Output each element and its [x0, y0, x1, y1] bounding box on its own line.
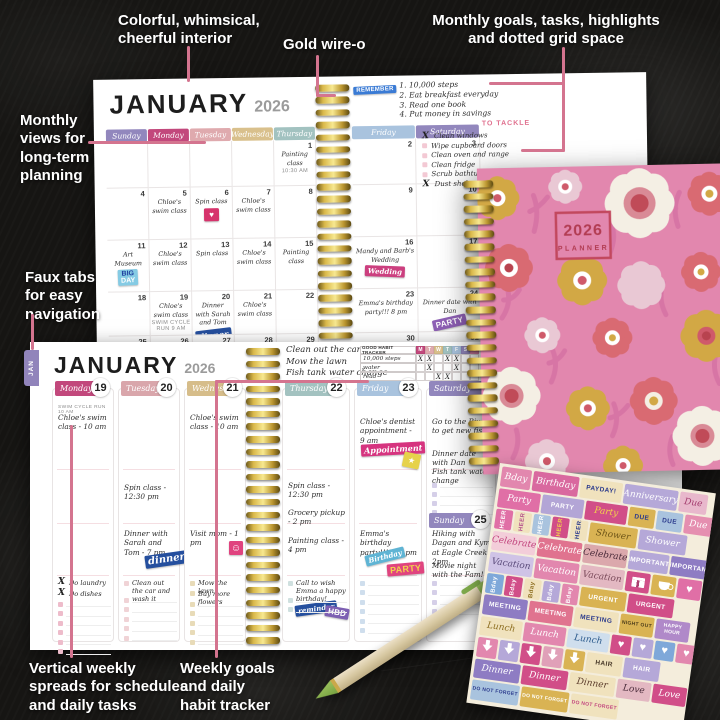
- gold-wire-o-binding: [315, 84, 353, 338]
- annotation-weekly-goals: Weekly goals and daily habit tracker: [180, 660, 275, 715]
- wire-loop: [246, 537, 280, 544]
- monthly-day-cell: [232, 140, 275, 187]
- sunday-banner: Sunday: [429, 513, 477, 528]
- monthly-day-cell: 23Emma's birthday party!!! 8 pm: [354, 288, 419, 333]
- monthly-weekday-header: Tuesday: [190, 128, 231, 142]
- todo-item: XDo laundry: [58, 579, 111, 587]
- smiley-sticker: ☺: [229, 541, 243, 555]
- wire-loop: [246, 373, 280, 380]
- habit-day-header: M: [416, 346, 425, 354]
- habit-mark-cell: [416, 363, 425, 372]
- habit-mark-cell: X: [443, 372, 452, 381]
- day-event-text: Painting class: [274, 151, 315, 169]
- day-event-text: Spin class: [191, 198, 232, 207]
- habit-tracker: GOOD HABIT TRACKERMTWTFSS10,000 stepsXXX…: [360, 346, 479, 381]
- day-event-text: Dinner with Sarah and Tom: [192, 302, 233, 328]
- schedule-rule: [287, 469, 345, 470]
- arrow-sticker-tile: [563, 649, 586, 671]
- important-sticker-tile: IMPORTANT: [669, 555, 711, 580]
- PARTY-sticker: PARTY: [387, 561, 425, 576]
- day-event-text: Emma's birthday party!!! 8 pm: [354, 299, 417, 317]
- cheers-sticker-tile: CHEERS: [494, 509, 514, 531]
- heart-sticker-tile: [676, 578, 702, 601]
- monthly-day-cell: [148, 142, 191, 189]
- empty-checkbox-row: [360, 589, 419, 596]
- to-tackle-item: Scrub bathtub: [422, 170, 482, 179]
- cheers-sticker-tile: CHEERS: [531, 514, 551, 536]
- wire-loop: [246, 612, 280, 619]
- habit-day-header: S: [470, 346, 479, 354]
- wire-loop: [246, 486, 280, 493]
- planner-cover: 2026 PLANNER: [477, 163, 720, 474]
- column-event-text: Spin class - 12:30 pm: [288, 481, 346, 500]
- empty-checkbox-row: [58, 610, 111, 617]
- empty-checkbox-row: [432, 490, 493, 497]
- monthly-day-cell: 5Chloe's swim class: [149, 188, 192, 241]
- big-day-sticker: BIGDAY: [118, 269, 139, 286]
- monthly-weekday-header: Wednesday: [232, 127, 273, 141]
- monthly-day-cell: 6Spin class♥: [191, 187, 234, 240]
- habit-mark-cell: [470, 363, 479, 372]
- hair-sticker-tile: HAIR: [622, 657, 660, 681]
- monthly-day-cell: 18: [108, 292, 151, 337]
- weekly-day-column: Tuesday20Spin class - 12:30 pmDinner wit…: [118, 388, 180, 642]
- day-event-text: Chloe's swim class: [150, 251, 191, 269]
- bday-sticker-tile: Bday: [541, 581, 561, 603]
- wire-loop: [317, 233, 351, 240]
- empty-checkbox-row: [58, 619, 111, 626]
- cover-year-badge: 2026 PLANNER: [556, 212, 611, 259]
- faux-month-tab: JAN: [24, 350, 39, 386]
- wire-loop: [315, 84, 349, 91]
- wire-loop: [316, 159, 350, 166]
- schedule-rule: [57, 469, 109, 470]
- monthly-day-cell: 7Chloe's swim class: [233, 186, 276, 239]
- bday-sticker-tile: Bday: [523, 578, 543, 600]
- monthly-day-cell: 16Mandy and Barb's WeddingWedding: [353, 236, 418, 289]
- wire-loop: [246, 600, 280, 607]
- habit-day-header: W: [434, 346, 443, 354]
- habit-mark-cell: [452, 372, 461, 381]
- habit-day-header: F: [452, 346, 461, 354]
- due-sticker-tile: DUE: [628, 506, 656, 529]
- wire-loop: [318, 295, 352, 302]
- habit-mark-cell: X: [425, 363, 434, 372]
- todo-item: XDo dishes: [58, 590, 111, 598]
- wire-loop: [246, 625, 280, 632]
- day-number: 25: [471, 510, 490, 529]
- wire-loop: [246, 436, 280, 443]
- habit-mark-cell: X: [452, 354, 461, 363]
- schedule-rule: [123, 469, 175, 470]
- habit-tracker-title: GOOD HABIT TRACKER: [360, 346, 416, 354]
- empty-checkbox-row: [360, 598, 419, 605]
- habit-mark-cell: [470, 372, 479, 381]
- empty-checkbox-row: [124, 606, 177, 613]
- empty-checkbox-row: [360, 608, 419, 615]
- wire-loop: [246, 398, 280, 405]
- star-note-sticker: ★: [402, 451, 422, 469]
- empty-checkbox-row: [360, 617, 419, 624]
- habit-mark-cell: [443, 363, 452, 372]
- column-event-text: Grocery pickup - 2 pm: [288, 508, 346, 527]
- monthly-day-cell: 13Spin class: [191, 239, 234, 292]
- monthly-day-cell: 14Chloe's swim class: [233, 238, 276, 291]
- column-event-text: Chloe's swim class - 10 am: [58, 413, 110, 432]
- wire-loop: [318, 258, 352, 265]
- annotation-callout-line: [316, 94, 336, 97]
- wire-loop: [246, 449, 280, 456]
- wire-loop: [246, 461, 280, 468]
- monthly-day-cell: 24Dinner date with DanPARTY: [418, 287, 483, 332]
- day-number: 20: [157, 378, 176, 397]
- empty-checkbox-row: [124, 634, 177, 641]
- tab-label: JAN: [28, 360, 35, 376]
- weekly-month-label: JANUARY: [54, 352, 178, 378]
- annotation-monthly-goals: Monthly goals, tasks, highlights and dot…: [400, 12, 692, 49]
- annotation-faux-tabs: Faux tabs for easy navigation: [25, 269, 100, 324]
- gift-sticker-tile: [625, 571, 651, 594]
- wire-loop: [317, 245, 351, 252]
- wire-loop: [246, 549, 280, 556]
- annotation-callout-line: [489, 82, 565, 85]
- annotation-vertical-weekly: Vertical weekly spreads for schedules an…: [29, 660, 188, 715]
- heart-sticker-tile: [675, 643, 698, 665]
- empty-checkbox-row: [288, 596, 347, 603]
- day-event-text: Dinner date with Dan: [418, 298, 481, 316]
- monthly-day-cell: 11Art MuseumBIGDAY: [107, 240, 150, 293]
- empty-checkbox-row: [58, 629, 111, 636]
- day-cell-stickers: BIGDAY: [108, 269, 149, 286]
- empty-checkbox-row: [58, 638, 111, 645]
- monthly-day-cell: 10: [417, 183, 482, 236]
- wire-loop: [246, 512, 280, 519]
- column-event-text: Painting class - 4 pm: [288, 536, 346, 555]
- bday-sticker-tile: Bday: [500, 466, 532, 489]
- schedule-rule: [123, 523, 175, 524]
- wire-loop: [318, 282, 352, 289]
- wire-loop: [246, 562, 280, 569]
- heart-sticker-tile: [653, 640, 676, 662]
- habit-mark-cell: X: [443, 354, 452, 363]
- wire-loop: [246, 348, 280, 355]
- cover-floral-art: 2026 PLANNER: [477, 163, 720, 474]
- to-tackle-item: XDust shelves: [423, 179, 480, 188]
- monthly-day-cell: 15Painting class: [275, 238, 318, 291]
- empty-checkbox-row: [58, 600, 111, 607]
- day-event-text: Chloe's swim class: [149, 199, 190, 217]
- day-event-micro-text: SWIM CYCLE RUN 9 AM: [151, 320, 192, 333]
- day-number: 19: [91, 378, 110, 397]
- wire-loop: [319, 319, 353, 326]
- wire-loop: [316, 171, 350, 178]
- habit-row: 10,000 stepsXXXX: [360, 354, 479, 363]
- annotation-callout-line: [88, 141, 206, 144]
- monthly-day-cell: 19Chloe's swim classSWIM CYCLE RUN 9 AM: [150, 292, 193, 337]
- arrow-sticker-tile: [541, 646, 564, 668]
- habit-day-header: T: [425, 346, 434, 354]
- cheers-sticker-tile: CHEERS: [550, 517, 570, 539]
- empty-checkbox-row: [432, 499, 493, 506]
- gold-wire-o-binding: [246, 348, 280, 644]
- monthly-day-cell: 9: [353, 184, 418, 237]
- day-cell-stickers: ♥: [191, 207, 232, 221]
- day-event-text: Chloe's swim class: [150, 303, 191, 321]
- wire-loop: [318, 270, 352, 277]
- day-event-text: Mandy and Barb's Wedding: [354, 247, 417, 265]
- heart-sticker-tile: [631, 637, 654, 659]
- annotation-callout-line: [215, 380, 218, 658]
- remember-sticker: REMEMBER: [353, 85, 397, 95]
- monthly-title: JANUARY2026: [109, 87, 290, 121]
- schedule-rule: [57, 523, 109, 524]
- empty-checkbox-row: [124, 596, 177, 603]
- habit-mark-cell: [434, 363, 443, 372]
- do-not-forget-sticker-tile: DO NOT FORGET: [569, 693, 619, 719]
- day-cell-stickers: Wedding: [354, 265, 417, 277]
- wire-loop: [315, 97, 349, 104]
- day-event-text: Chloe's swim class: [233, 197, 274, 215]
- empty-checkbox-row: [124, 615, 177, 622]
- wire-loop: [246, 361, 280, 368]
- schedule-rule: [57, 575, 109, 576]
- column-event-text: Spin class - 12:30 pm: [124, 483, 176, 502]
- wire-loop: [246, 411, 280, 418]
- to-tackle-item: XClean windows: [422, 131, 488, 140]
- day-event-text: Chloe's swim class: [234, 301, 275, 319]
- day-event-text: Spin class: [192, 250, 233, 259]
- cover-year: 2026: [563, 222, 603, 240]
- annotation-callout-line: [215, 380, 369, 383]
- habit-mark-cell: [416, 372, 425, 381]
- schedule-rule: [359, 469, 417, 470]
- arrow-sticker-tile: [498, 640, 521, 662]
- annotation-monthly-views: Monthly views for long-term planning: [20, 112, 89, 185]
- do-not-forget-sticker-tile: DO NOT FORGET: [470, 679, 520, 705]
- love-sticker-tile: Love: [651, 683, 687, 707]
- habit-row-label: water: [360, 363, 416, 372]
- day-event-micro-text: 10:30 AM: [274, 168, 315, 175]
- habit-mark-cell: X: [434, 372, 443, 381]
- annotation-callout-line: [31, 314, 34, 350]
- annotation-callout-line: [70, 425, 73, 658]
- night-out-sticker-tile: NIGHT OUT: [619, 613, 655, 637]
- habit-mark-cell: [461, 354, 470, 363]
- monthly-year-label: 2026: [254, 98, 290, 115]
- wire-loop: [246, 587, 280, 594]
- habit-day-header: S: [461, 346, 470, 354]
- cheers-sticker-tile: CHEERS: [513, 512, 533, 534]
- schedule-rule: [123, 575, 175, 576]
- habit-mark-cell: X: [425, 354, 434, 363]
- sticker-sheet: BdayBirthdayPAYDAY!AnniversaryDuePartyPA…: [466, 463, 716, 720]
- monthly-day-cell: 22: [276, 290, 319, 335]
- empty-checkbox-row: [58, 648, 111, 655]
- monthly-weekday-header: Friday: [352, 125, 415, 139]
- love-sticker-tile: Love: [616, 678, 652, 702]
- wire-loop: [246, 423, 280, 430]
- weekly-title: JANUARY2026: [54, 352, 215, 379]
- day-cell-stickers: PARTY: [418, 316, 481, 328]
- due-sticker-tile: DUE: [655, 510, 683, 533]
- bday-sticker-tile: Bday: [485, 573, 505, 595]
- monthly-day-cell: 17: [417, 235, 482, 288]
- wire-loop: [246, 499, 280, 506]
- weekly-day-column: Friday23Chloe's dentist appointment - 9 …: [354, 388, 422, 642]
- remember-item: 4. Put money in savings: [400, 109, 492, 120]
- wire-loop: [317, 220, 351, 227]
- cover-planner-label: PLANNER: [558, 245, 609, 253]
- heart-sticker: ♥: [204, 208, 219, 221]
- annotation-wireo: Gold wire-o: [283, 36, 366, 54]
- monthly-day-cell: 21Chloe's swim class: [234, 290, 277, 335]
- do-not-forget-sticker-tile: DO NOT FORGET: [519, 686, 569, 712]
- habit-row-label: 10,000 steps: [360, 354, 416, 363]
- wire-loop: [316, 121, 350, 128]
- habit-mark-cell: [461, 363, 470, 372]
- wire-loop: [316, 109, 350, 116]
- monthly-weekday-header: Thursday: [274, 127, 315, 141]
- weekly-day-column: Thursday22Spin class - 12:30 pmGrocery p…: [282, 388, 350, 642]
- schedule-rule: [359, 523, 417, 524]
- wire-loop: [317, 196, 351, 203]
- wire-loop: [316, 146, 350, 153]
- habit-row: readXX: [360, 372, 479, 381]
- monthly-day-cell: 4: [107, 188, 150, 241]
- arrow-sticker-tile: [476, 637, 499, 659]
- habit-day-header: T: [443, 346, 452, 354]
- hair-sticker-tile: HAIR: [585, 652, 623, 676]
- schedule-rule: [287, 575, 345, 576]
- weekly-year-label: 2026: [184, 360, 215, 376]
- wire-loop: [319, 332, 353, 339]
- habit-header-row: GOOD HABIT TRACKERMTWTFSS: [360, 346, 479, 354]
- day-event-text: Chloe's swim class: [234, 249, 275, 267]
- due-sticker-tile: Due: [683, 514, 713, 537]
- coffee-sticker-tile: [650, 574, 676, 597]
- heart-sticker-tile: [610, 634, 633, 656]
- to-tackle-item: Clean fridge: [422, 160, 475, 169]
- monthly-day-cell: [106, 142, 149, 189]
- habit-mark-cell: X: [416, 354, 425, 363]
- wire-loop: [246, 637, 280, 644]
- habit-mark-cell: X: [452, 363, 461, 372]
- due-sticker-tile: Due: [678, 491, 708, 514]
- empty-checkbox-row: [360, 579, 419, 586]
- bday-sticker-tile: Bday: [504, 575, 524, 597]
- habit-mark-cell: [461, 372, 470, 381]
- weekly-day-column: Monday19SWIM CYCLE RUN 10 AMChloe's swim…: [52, 388, 114, 642]
- cheers-sticker-tile: CHEERS: [569, 520, 589, 542]
- empty-checkbox-row: [288, 606, 347, 613]
- arrow-sticker-tile: [519, 643, 542, 665]
- to-tackle-item: Clean oven and range: [422, 150, 509, 159]
- day-event-text: Painting class: [276, 249, 317, 267]
- habit-mark-cell: [425, 372, 434, 381]
- habit-mark-cell: [434, 354, 443, 363]
- wire-loop: [246, 474, 280, 481]
- wire-loop: [318, 307, 352, 314]
- monthly-day-cell: 2: [352, 138, 417, 185]
- habit-row: waterXX: [360, 363, 479, 372]
- monthly-day-cell: 8: [275, 186, 318, 239]
- empty-checkbox-row: [124, 625, 177, 632]
- annotation-callout-line: [521, 149, 565, 152]
- important-sticker-tile: IMPORTANT: [628, 549, 670, 574]
- to-tackle-item: Wipe cupboard doors: [422, 141, 507, 150]
- habit-mark-cell: [470, 354, 479, 363]
- wire-loop: [246, 386, 280, 393]
- day-event-text: Art Museum: [108, 251, 149, 269]
- wire-loop: [246, 524, 280, 531]
- empty-checkbox-row: [432, 481, 493, 488]
- to-tackle-title: TO TACKLE: [482, 120, 530, 128]
- monthly-day-cell: [190, 141, 233, 188]
- bday-sticker-tile: Bday: [560, 583, 580, 605]
- wire-loop: [317, 183, 351, 190]
- monthly-day-cell: 12Chloe's swim class: [149, 240, 192, 293]
- annotation-callout-line: [187, 46, 190, 82]
- wire-loop: [317, 208, 351, 215]
- annotation-colorful: Colorful, whimsical, cheerful interior: [118, 12, 260, 49]
- annotation-callout-line: [316, 55, 319, 97]
- happy-hour-sticker-tile: HAPPY HOUR: [654, 618, 690, 642]
- monthly-day-cell: 20Dinner with Sarah and Tomdinner: [192, 291, 235, 336]
- wire-loop: [316, 134, 350, 141]
- Wedding-sticker: Wedding: [365, 265, 406, 278]
- wire-loop: [246, 574, 280, 581]
- monthly-month-label: JANUARY: [109, 88, 248, 120]
- annotation-callout-line: [562, 47, 565, 152]
- monthly-day-cell: 1Painting class10:30 AM: [274, 140, 317, 187]
